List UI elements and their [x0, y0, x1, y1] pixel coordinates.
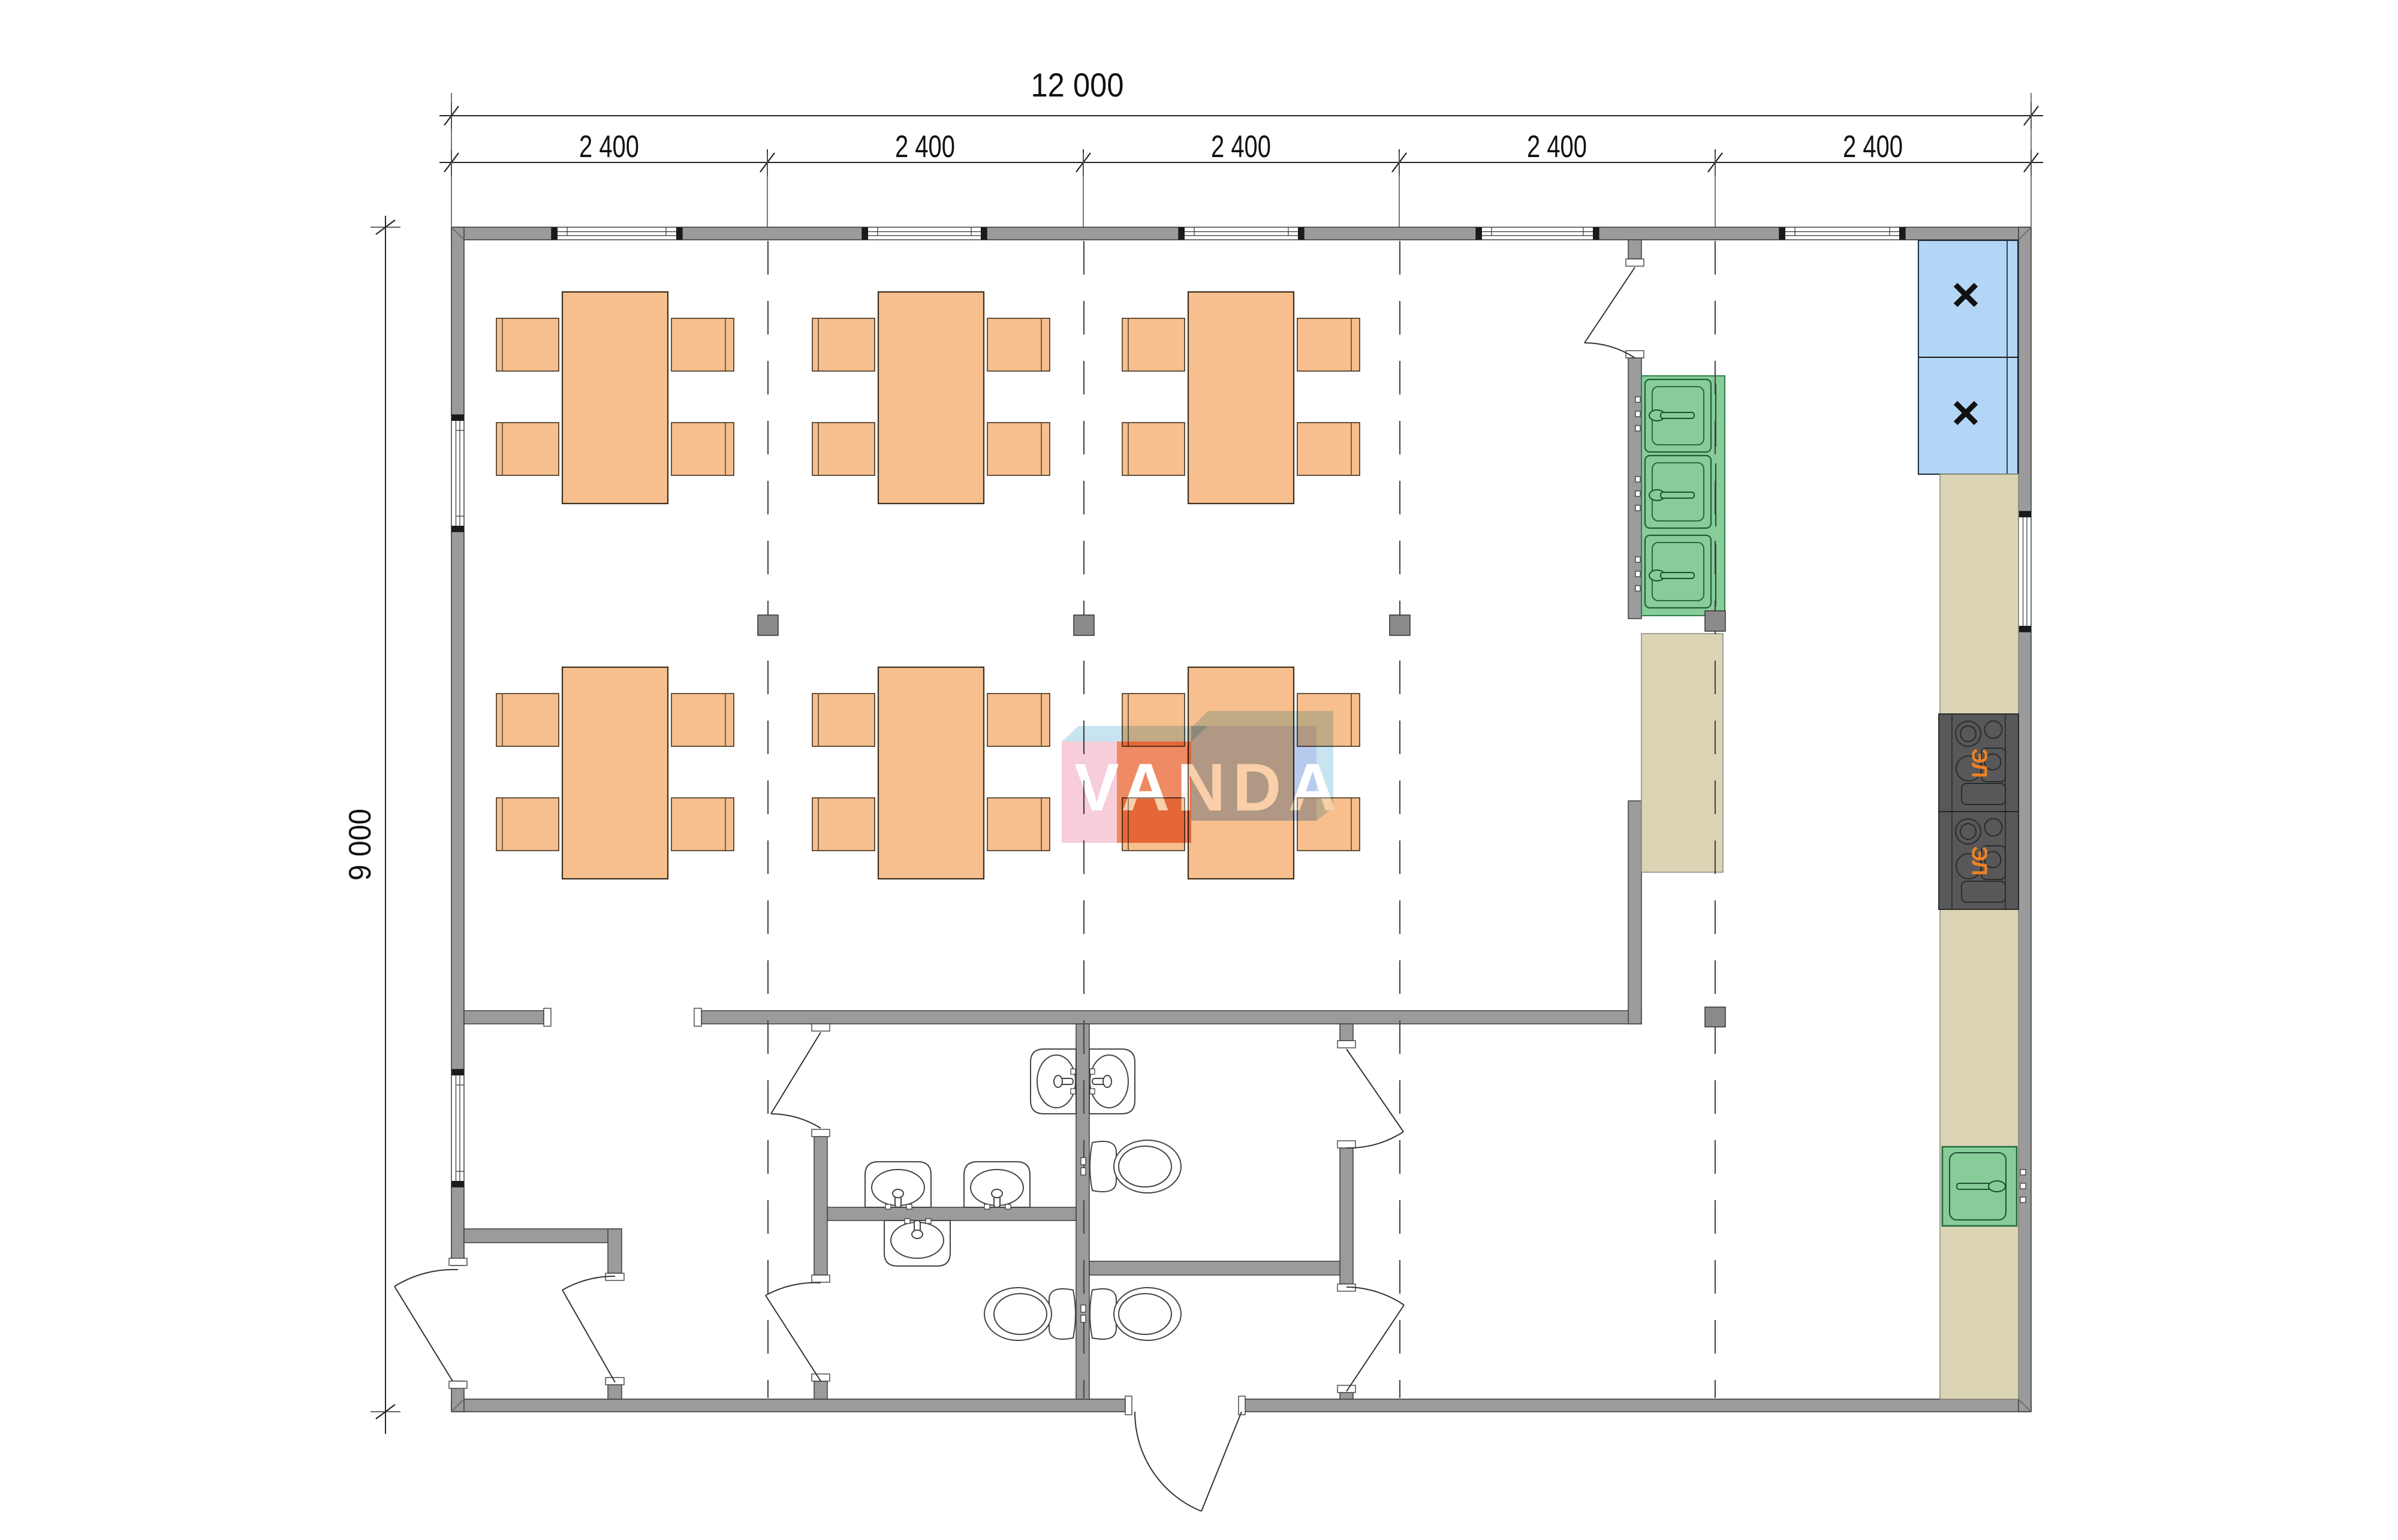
svg-text:ЭЛ: ЭЛ — [1967, 748, 1992, 778]
svg-text:9 000: 9 000 — [343, 809, 378, 881]
svg-text:2 400: 2 400 — [579, 129, 639, 164]
svg-text:2 400: 2 400 — [1211, 129, 1271, 164]
svg-text:2 400: 2 400 — [1527, 129, 1587, 164]
svg-text:VANDA: VANDA — [1074, 750, 1344, 825]
svg-text:12 000: 12 000 — [1031, 66, 1124, 104]
svg-text:2 400: 2 400 — [1843, 129, 1903, 164]
svg-text:2 400: 2 400 — [895, 129, 955, 164]
svg-text:ЭЛ: ЭЛ — [1967, 846, 1992, 876]
